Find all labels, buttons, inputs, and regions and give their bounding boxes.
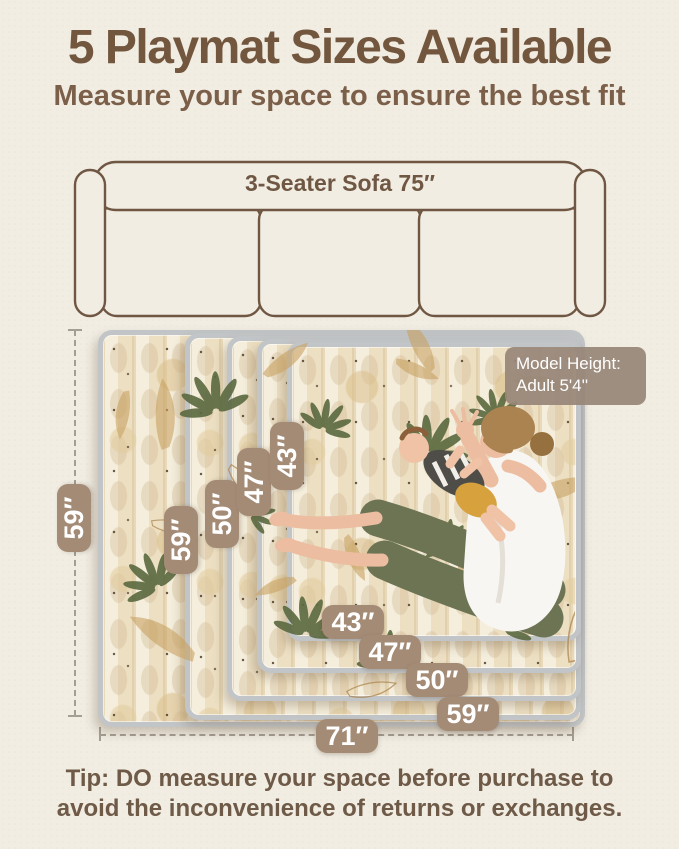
- size-badge-bottom-59: 59″: [437, 697, 499, 731]
- page-background: 5 Playmat Sizes Available Measure your s…: [0, 0, 679, 849]
- dimension-cap: [68, 715, 82, 717]
- sofa-size-label: 3-Seater Sofa 75″: [94, 170, 586, 197]
- size-badge-vertical-50: 50″: [205, 480, 239, 548]
- tip-text: Tip: DO measure your space before purcha…: [45, 764, 635, 824]
- dimension-cap: [99, 727, 101, 741]
- size-badge-outer-width-71: 71″: [316, 719, 378, 753]
- size-badge-vertical-43: 43″: [270, 422, 304, 490]
- model-height-badge: Model Height: Adult 5'4'': [505, 347, 646, 405]
- dimension-cap: [68, 329, 82, 331]
- page-title: 5 Playmat Sizes Available: [0, 20, 679, 75]
- size-badge-outer-height-59: 59″: [57, 484, 91, 552]
- model-height-line2: Adult 5'4'': [516, 375, 640, 397]
- model-height-line1: Model Height:: [516, 353, 640, 375]
- page-subtitle: Measure your space to ensure the best fi…: [0, 80, 679, 113]
- size-badge-vertical-59: 59″: [164, 506, 198, 574]
- size-badge-bottom-50: 50″: [406, 663, 468, 697]
- dimension-cap: [572, 727, 574, 741]
- size-badge-bottom-43: 43″: [322, 605, 384, 639]
- size-badge-vertical-47: 47″: [237, 448, 271, 516]
